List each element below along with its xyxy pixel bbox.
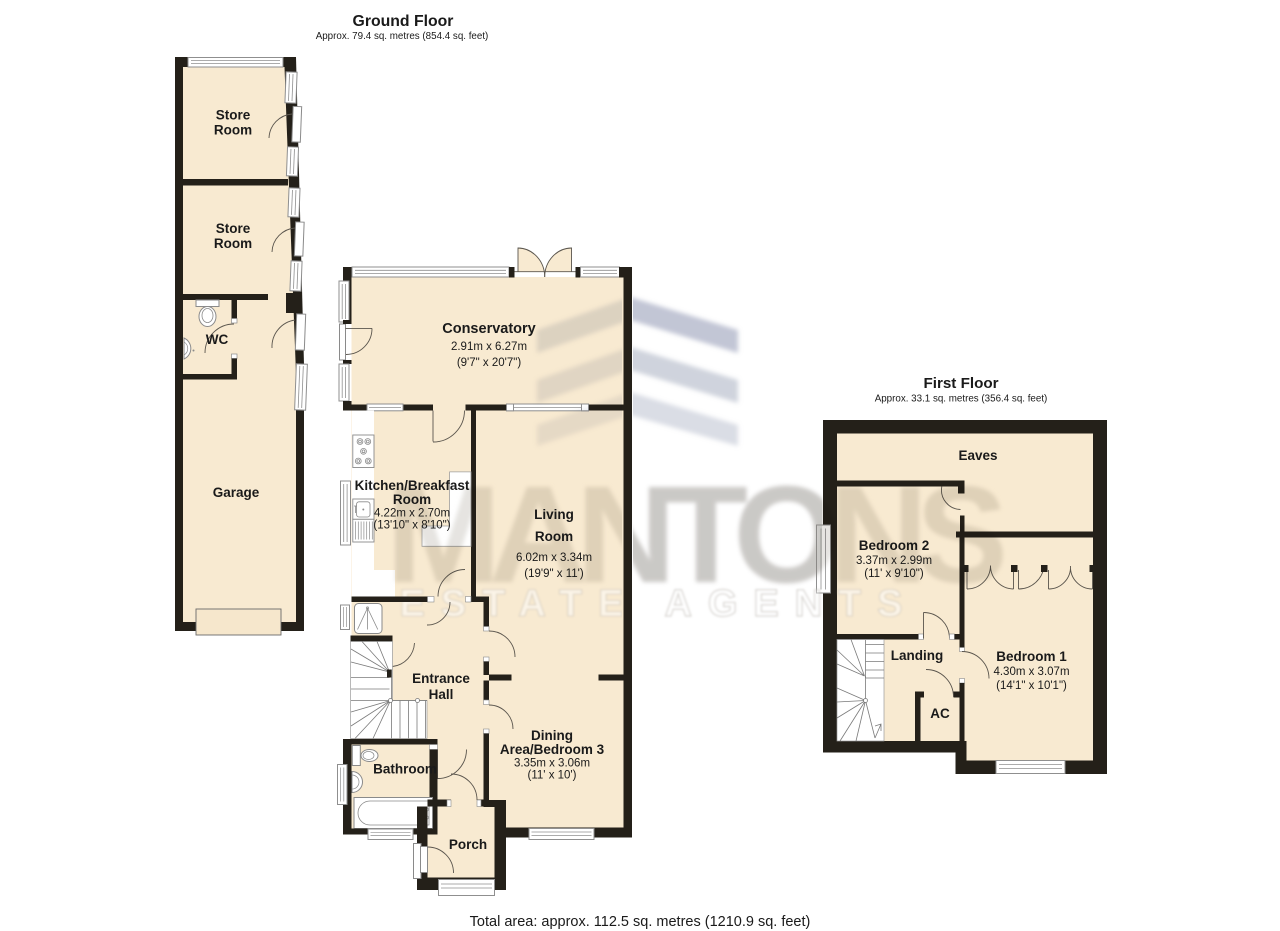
svg-text:3.35m x 3.06m: 3.35m x 3.06m — [514, 758, 590, 770]
svg-text:Store: Store — [216, 108, 251, 123]
svg-text:(9'7" x 20'7"): (9'7" x 20'7") — [457, 357, 522, 369]
svg-text:Room: Room — [214, 123, 252, 138]
svg-text:Room: Room — [214, 236, 252, 251]
svg-text:(14'1" x 10'1"): (14'1" x 10'1") — [996, 680, 1067, 692]
svg-text:Approx. 79.4 sq. metres (854.4: Approx. 79.4 sq. metres (854.4 sq. feet) — [316, 31, 489, 42]
svg-text:Total area: approx. 112.5 sq.: Total area: approx. 112.5 sq. metres (12… — [470, 914, 811, 930]
svg-text:Approx. 33.1 sq. metres (356.4: Approx. 33.1 sq. metres (356.4 sq. feet) — [875, 394, 1048, 405]
svg-text:Bathroom: Bathroom — [373, 762, 437, 777]
svg-text:Entrance: Entrance — [412, 671, 470, 686]
svg-text:Porch: Porch — [449, 837, 487, 852]
svg-text:Garage: Garage — [213, 485, 260, 500]
svg-text:AC: AC — [930, 706, 950, 721]
svg-text:Ground Floor: Ground Floor — [353, 13, 454, 30]
svg-text:Dining: Dining — [531, 728, 573, 743]
svg-text:Conservatory: Conservatory — [442, 321, 535, 337]
svg-text:2.91m x 6.27m: 2.91m x 6.27m — [451, 341, 527, 353]
svg-text:Store: Store — [216, 221, 251, 236]
svg-text:Landing: Landing — [891, 648, 944, 663]
svg-text:WC: WC — [206, 332, 229, 347]
svg-text:4.30m x 3.07m: 4.30m x 3.07m — [993, 666, 1069, 678]
svg-text:Bedroom 1: Bedroom 1 — [996, 649, 1067, 664]
svg-text:First Floor: First Floor — [923, 375, 998, 392]
svg-text:Area/Bedroom 3: Area/Bedroom 3 — [500, 742, 605, 757]
svg-text:Hall: Hall — [429, 687, 454, 702]
svg-text:(11' x 10'): (11' x 10') — [528, 770, 577, 782]
